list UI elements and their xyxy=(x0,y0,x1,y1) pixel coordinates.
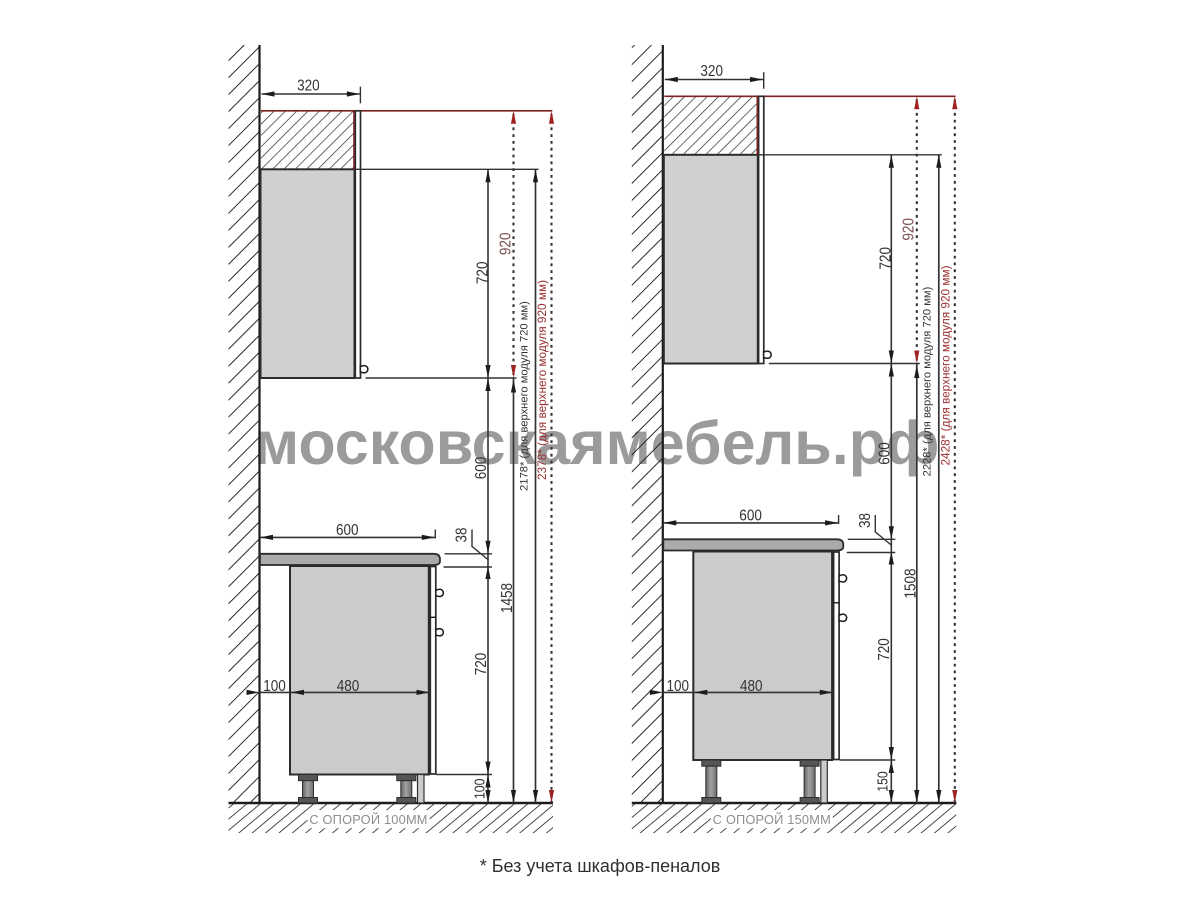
svg-text:2178* (для верхнего модуля 720: 2178* (для верхнего модуля 720 мм) xyxy=(518,301,530,491)
svg-text:720: 720 xyxy=(878,247,895,270)
svg-text:38: 38 xyxy=(454,527,471,542)
svg-text:480: 480 xyxy=(337,678,360,695)
svg-text:480: 480 xyxy=(740,678,763,695)
svg-text:600: 600 xyxy=(739,508,762,525)
svg-text:600: 600 xyxy=(473,457,490,480)
svg-text:720: 720 xyxy=(473,653,490,676)
svg-text:2378* (для верхнего модуля 920: 2378* (для верхнего модуля 920 мм) xyxy=(535,280,549,480)
svg-text:100: 100 xyxy=(472,779,488,799)
svg-text:920: 920 xyxy=(497,232,514,255)
svg-text:С ОПОРОЙ 150ММ: С ОПОРОЙ 150ММ xyxy=(713,812,831,827)
svg-text:320: 320 xyxy=(700,63,723,80)
svg-text:2228* (для верхнего модуля 720: 2228* (для верхнего модуля 720 мм) xyxy=(922,286,934,476)
svg-text:1458: 1458 xyxy=(499,583,516,613)
svg-text:100: 100 xyxy=(263,678,286,695)
svg-text:100: 100 xyxy=(667,678,690,695)
svg-text:150: 150 xyxy=(876,771,892,791)
svg-text:720: 720 xyxy=(474,261,491,284)
svg-text:2428* (для верхнего модуля 920: 2428* (для верхнего модуля 920 мм) xyxy=(938,265,952,465)
svg-text:320: 320 xyxy=(297,78,320,95)
svg-text:С ОПОРОЙ 100ММ: С ОПОРОЙ 100ММ xyxy=(309,812,427,827)
svg-text:600: 600 xyxy=(876,442,893,465)
svg-text:920: 920 xyxy=(901,218,918,241)
svg-text:1508: 1508 xyxy=(902,568,919,598)
svg-text:600: 600 xyxy=(336,522,359,539)
svg-text:720: 720 xyxy=(876,638,893,661)
svg-text:38: 38 xyxy=(857,513,874,528)
